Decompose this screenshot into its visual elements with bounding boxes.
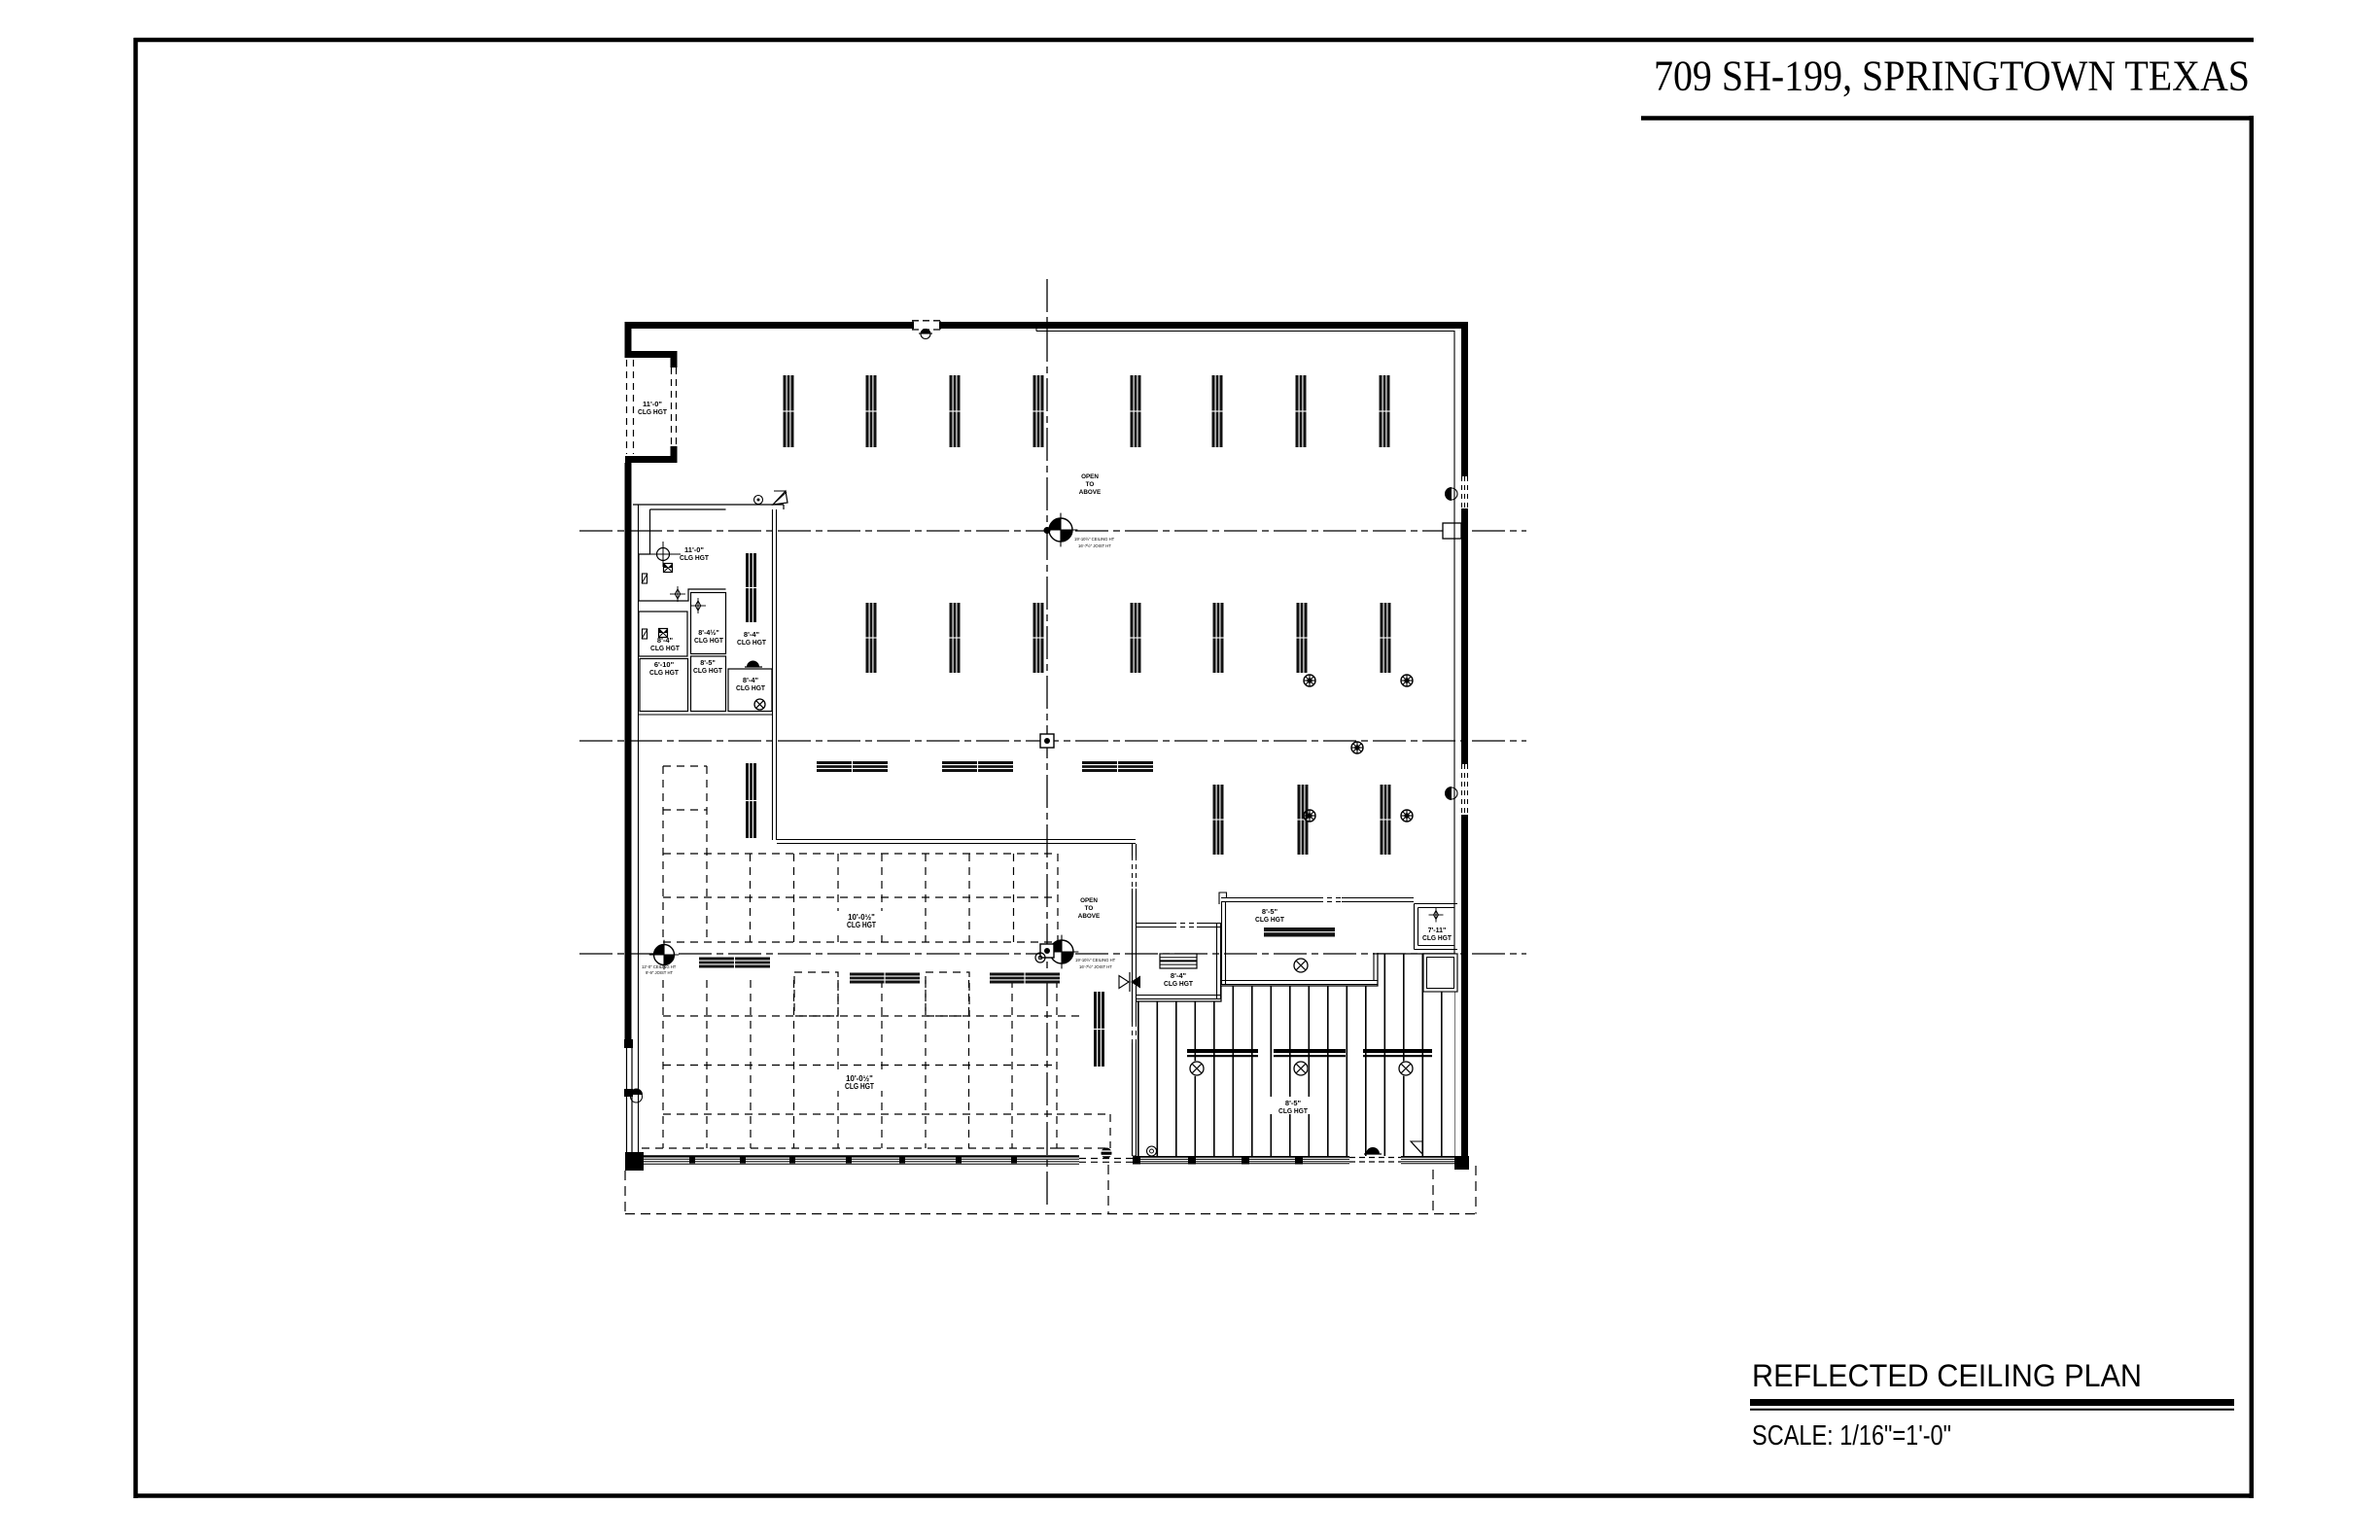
svg-text:CLG HGT: CLG HGT [845, 1082, 874, 1091]
svg-text:CLG HGT: CLG HGT [649, 668, 679, 677]
svg-text:CLG HGT: CLG HGT [737, 638, 766, 647]
svg-text:CLG HGT: CLG HGT [680, 553, 709, 562]
svg-text:ABOVE: ABOVE [1078, 913, 1100, 920]
svg-text:CLG HGT: CLG HGT [1255, 915, 1284, 924]
svg-text:16'-7½" JOIST HT: 16'-7½" JOIST HT [1079, 964, 1112, 969]
svg-text:CLG HGT: CLG HGT [694, 636, 724, 645]
svg-text:9'-9" JOIST HT: 9'-9" JOIST HT [646, 970, 673, 975]
svg-text:709 SH-199, SPRINGTOWN TEXAS: 709 SH-199, SPRINGTOWN TEXAS [1654, 52, 2250, 100]
svg-text:TO: TO [1086, 481, 1095, 488]
svg-text:12'-0" CEILING HT: 12'-0" CEILING HT [642, 964, 677, 969]
svg-text:CLG HGT: CLG HGT [847, 921, 876, 929]
svg-text:CLG HGT: CLG HGT [736, 683, 765, 692]
svg-text:SCALE: 1/16"=1'-0": SCALE: 1/16"=1'-0" [1752, 1420, 1951, 1452]
svg-text:CLG HGT: CLG HGT [1422, 935, 1452, 942]
svg-text:OPEN: OPEN [1080, 897, 1098, 904]
svg-text:CLG HGT: CLG HGT [1164, 979, 1193, 988]
svg-text:19'-10½" CEILING HT: 19'-10½" CEILING HT [1074, 537, 1115, 542]
svg-text:19'-10½" CEILING HT: 19'-10½" CEILING HT [1075, 958, 1116, 962]
svg-text:TO: TO [1085, 905, 1094, 912]
svg-text:16'-7½" JOIST HT: 16'-7½" JOIST HT [1078, 543, 1111, 548]
svg-text:CLG HGT: CLG HGT [1278, 1106, 1308, 1115]
svg-text:7'-11": 7'-11" [1428, 927, 1447, 934]
svg-text:ABOVE: ABOVE [1079, 489, 1101, 496]
svg-text:CLG HGT: CLG HGT [693, 666, 723, 675]
svg-text:OPEN: OPEN [1081, 473, 1099, 480]
svg-text:REFLECTED CEILING PLAN: REFLECTED CEILING PLAN [1752, 1358, 2142, 1393]
svg-text:CLG HGT: CLG HGT [650, 644, 680, 652]
svg-text:CLG HGT: CLG HGT [638, 407, 667, 416]
